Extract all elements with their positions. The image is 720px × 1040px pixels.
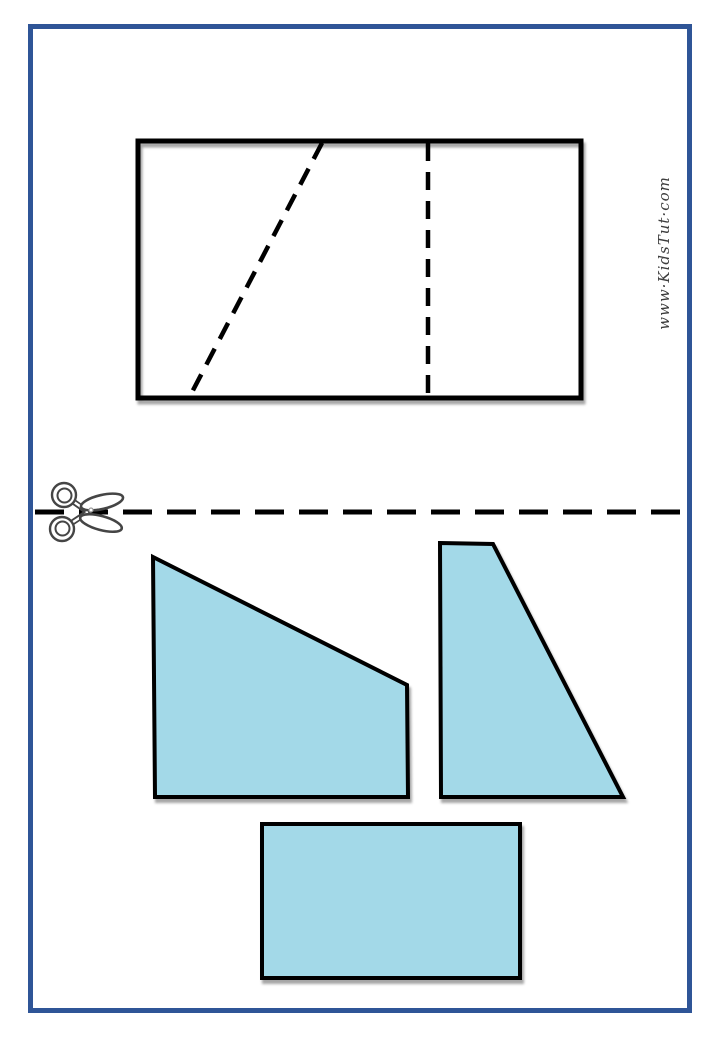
puzzle-pieces [153,543,623,978]
puzzle-template-outline [138,141,581,398]
scissors-handle-hole [56,522,70,536]
piece-quadrilateral [153,557,408,797]
scissors-blade [79,490,124,513]
worksheet-page: www·KidsTut·com [0,0,720,1040]
scissors-handle-hole [58,489,72,503]
cut-guide-line [190,143,322,396]
cut-guides [190,143,428,396]
piece-right-trapezoid [440,543,623,797]
scissors-screw [89,508,93,512]
piece-rectangle [262,824,520,978]
worksheet-canvas [0,0,720,1040]
watermark-text: www·KidsTut·com [655,176,673,330]
